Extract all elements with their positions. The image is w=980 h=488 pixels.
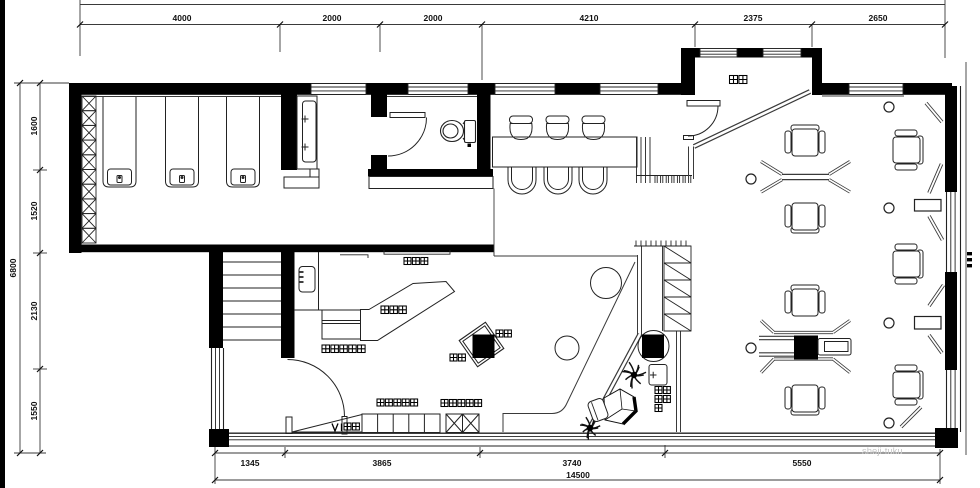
svg-text:2000: 2000 [323, 13, 342, 23]
svg-text:4000: 4000 [173, 13, 192, 23]
svg-text:3740: 3740 [563, 458, 582, 468]
svg-text:1550: 1550 [29, 401, 39, 420]
svg-text:1520: 1520 [29, 201, 39, 220]
svg-text:5550: 5550 [793, 458, 812, 468]
svg-text:1600: 1600 [29, 116, 39, 135]
svg-text:1345: 1345 [241, 458, 260, 468]
svg-text:sheji·tuku: sheji·tuku [862, 446, 903, 457]
svg-text:2375: 2375 [744, 13, 763, 23]
svg-text:2000: 2000 [424, 13, 443, 23]
svg-text:2650: 2650 [869, 13, 888, 23]
svg-text:6800: 6800 [8, 258, 18, 277]
svg-text:3865: 3865 [373, 458, 392, 468]
svg-text:4210: 4210 [580, 13, 599, 23]
svg-text:14500: 14500 [566, 470, 590, 480]
svg-text:2130: 2130 [29, 301, 39, 320]
